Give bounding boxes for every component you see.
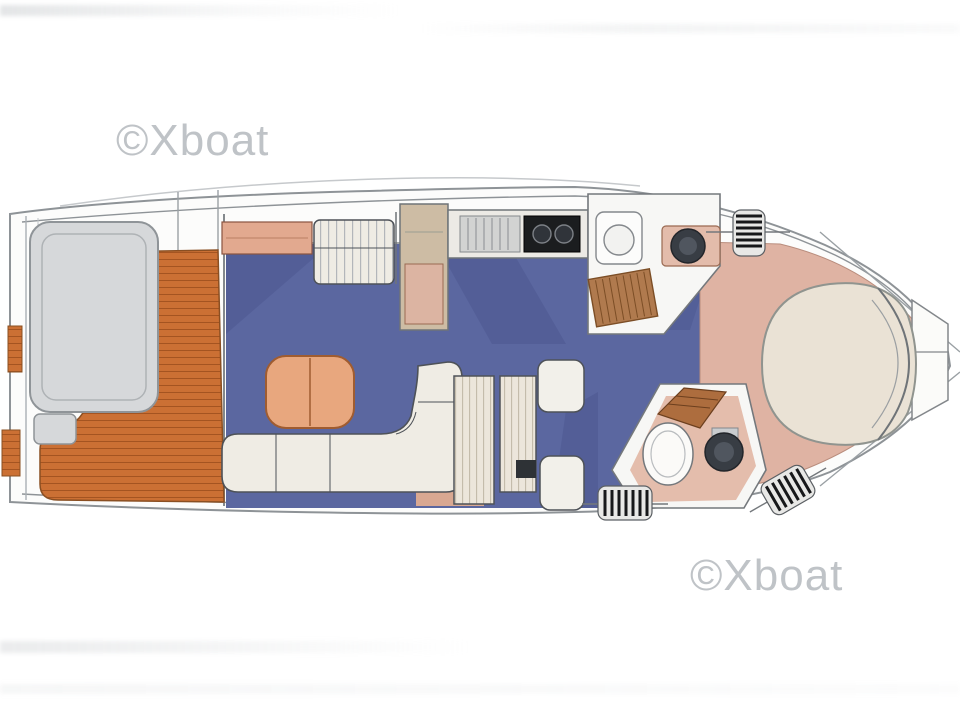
cockpit-seat [30,222,158,412]
swim-platform-teak-1 [8,326,22,372]
mid-cabin-berth-panel-1 [454,376,494,504]
aft-cockpit [30,222,224,502]
watermark-xboat-top-left: ©Xboat [116,116,269,166]
mid-cabin-seat-2 [540,456,584,510]
mid-cabin-step [516,460,536,478]
watermark-xboat-bottom-right: ©Xboat [690,551,843,601]
boat-plan-image: ©Xboat ©Xboat [0,0,960,720]
mid-cabin-seat-1 [538,360,584,412]
bow-lockers [912,300,948,420]
lower-head-toilet-bowl [714,442,734,462]
stove-burner-2 [555,225,573,243]
upper-head-toilet-bowl [679,237,697,255]
stove-burner-1 [533,225,551,243]
bow-cabin [762,283,948,445]
upper-head-sink-bowl [604,225,634,255]
deck-plan-svg [0,0,960,720]
galley-counter-leg-inset [405,264,443,324]
swim-platform-teak-2 [2,430,20,476]
port-settee [314,220,394,284]
galley-sink-drainer [460,216,520,252]
cockpit-locker [34,414,76,444]
companionway-steps [588,269,657,327]
